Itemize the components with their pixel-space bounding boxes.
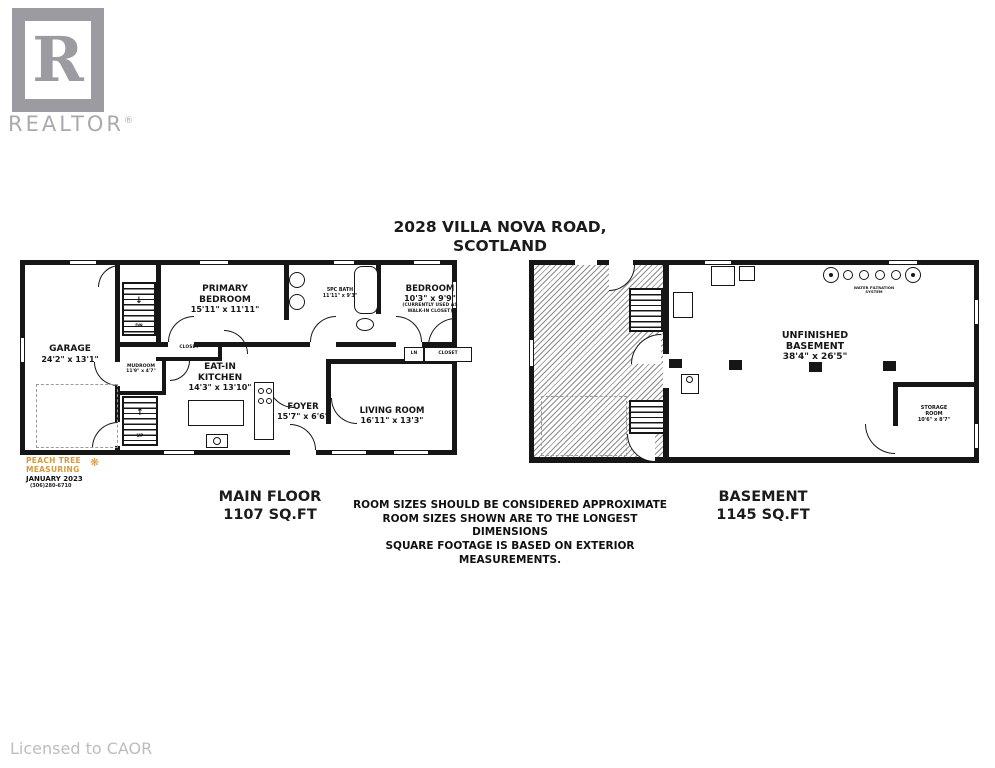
room-label-kitchen: EAT-IN KITCHEN 14'3" x 13'10" <box>170 362 270 393</box>
company-name: MEASURING <box>26 465 83 474</box>
room-name: BEDROOM <box>386 284 474 294</box>
dn-text: DN <box>135 324 143 329</box>
appliance <box>739 266 755 281</box>
mechanical-circle-icon <box>859 270 869 280</box>
measure-date: JANUARY 2023 <box>26 475 83 483</box>
support-pillar <box>809 362 822 372</box>
window <box>332 450 366 455</box>
realtor-wordmark-text: REALTOR <box>8 112 124 136</box>
sink-basin-icon <box>213 437 221 445</box>
realtor-logo: R <box>12 8 104 112</box>
property-address-title: 2028 VILLA NOVA ROAD, SCOTLAND <box>310 218 690 257</box>
registered-trademark-icon: ® <box>124 116 136 126</box>
room-label-mudroom: MUDROOM 11'9" x 4'7" <box>118 364 164 375</box>
room-label-garage: GARAGE 24'2" x 13'1" <box>20 344 120 364</box>
door-arc <box>224 330 248 354</box>
door-arc <box>428 318 456 346</box>
disclaimer: ROOM SIZES SHOULD BE CONSIDERED APPROXIM… <box>345 499 675 567</box>
room-dims: 15'7" x 6'6" <box>261 412 345 421</box>
room-name: UNFINISHED <box>765 330 865 341</box>
door-arc <box>98 265 120 287</box>
floor-sqft: 1145 SQ.FT <box>673 506 853 524</box>
wall <box>663 260 669 354</box>
kitchen-island <box>188 400 244 426</box>
stair-up-label: UP <box>125 434 155 439</box>
room-name: EAT-IN <box>170 362 270 373</box>
room-dims: 11'11" x 9'3" <box>300 294 380 300</box>
room-dims: 24'2" x 13'1" <box>20 355 120 364</box>
room-dims: 38'4" x 26'5" <box>765 352 865 363</box>
room-name: BASEMENT <box>765 341 865 352</box>
closet2-label-text: CLOSET <box>438 351 457 356</box>
room-dims: 16'11" x 13'3" <box>340 416 444 425</box>
door-arc <box>94 362 118 386</box>
linen-label-text: LN <box>411 351 418 356</box>
up-text: UP <box>137 434 144 439</box>
door-opening <box>290 450 316 455</box>
room-dims: 10'6" x 8'7" <box>902 418 966 424</box>
garage-dashed-area <box>36 384 118 448</box>
room-name: PRIMARY <box>175 284 275 295</box>
mechanical-dot-icon <box>829 273 833 277</box>
disclaimer-line: ROOM SIZES SHOULD BE CONSIDERED APPROXIM… <box>345 499 675 513</box>
wall <box>20 450 457 455</box>
door-arc <box>865 424 895 454</box>
window <box>974 300 979 324</box>
room-dims: 15'11" x 11'11" <box>175 305 275 314</box>
measuring-company-credit: PEACH TREE MEASURING JANUARY 2023 (306)2… <box>26 456 83 489</box>
company-name: PEACH TREE <box>26 456 83 465</box>
room-dims: 14'3" x 13'10" <box>170 383 270 392</box>
window <box>974 424 979 448</box>
basement-plan: WATER FILTRATION SYSTEM UNFINISHED BASEM… <box>527 258 989 470</box>
mechanical-dot-icon <box>911 273 915 277</box>
linen-label: LN <box>404 351 424 356</box>
stair-direction-arrow: ↑ <box>136 408 144 418</box>
support-pillar <box>883 361 896 371</box>
room-label-unfinished-basement: UNFINISHED BASEMENT 38'4" x 26'5" <box>765 330 865 363</box>
room-label-bath: 5PC BATH 11'11" x 9'3" <box>300 288 380 299</box>
valve-icon <box>686 376 693 383</box>
wall <box>162 357 166 395</box>
disclaimer-line: SQUARE FOOTAGE IS BASED ON EXTERIOR <box>345 540 675 554</box>
company-phone: (306)280-6710 <box>30 483 83 489</box>
room-name: LIVING ROOM <box>340 406 444 416</box>
address-line-2: SCOTLAND <box>310 237 690 256</box>
wall <box>529 457 979 463</box>
door-arc <box>396 316 422 342</box>
wall <box>893 382 898 426</box>
floor-name: BASEMENT <box>673 488 853 506</box>
closet-label: CLOSET <box>158 345 220 350</box>
room-name: BEDROOM <box>175 295 275 306</box>
appliance <box>673 292 693 318</box>
toilet <box>356 318 374 331</box>
window <box>164 450 194 455</box>
room-label-primary-bedroom: PRIMARY BEDROOM 15'11" x 11'11" <box>175 284 275 315</box>
door-arc <box>310 316 336 342</box>
wall <box>284 260 289 320</box>
window <box>414 260 440 265</box>
stairs <box>629 288 663 332</box>
window <box>70 260 96 265</box>
room-label-foyer: FOYER 15'7" x 6'6" <box>261 402 345 421</box>
equipment-label: WATER FILTRATION SYSTEM <box>839 286 909 295</box>
mechanical-circle-icon <box>891 270 901 280</box>
door-arc <box>168 316 194 342</box>
wall <box>120 391 166 395</box>
room-name: KITCHEN <box>170 373 270 384</box>
window <box>705 260 731 265</box>
room-label-storage-room: STORAGE ROOM 10'6" x 8'7" <box>902 406 966 424</box>
mechanical-circle-icon <box>875 270 885 280</box>
main-floor-plan: GARAGE 24'2" x 13'1" PRIMARY BEDROOM 15'… <box>18 258 480 470</box>
basement-footer: BASEMENT 1145 SQ.FT <box>673 488 853 524</box>
floor-name: MAIN FLOOR <box>180 488 360 506</box>
dashed-area <box>541 396 627 456</box>
window <box>334 260 354 265</box>
disclaimer-line: ROOM SIZES SHOWN ARE TO THE LONGEST <box>345 513 675 527</box>
address-line-1: 2028 VILLA NOVA ROAD, <box>310 218 690 237</box>
room-label-bedroom: BEDROOM 10'3" x 9'9" (CURRENTLY USED AS … <box>386 284 474 314</box>
sink <box>289 272 305 288</box>
stair-direction-arrow: ↓ <box>135 296 143 306</box>
stair-down-label: DN <box>124 324 154 329</box>
window <box>889 260 917 265</box>
room-label-living-room: LIVING ROOM 16'11" x 13'3" <box>340 406 444 425</box>
support-pillar <box>729 360 742 370</box>
floor-plan-page: R REALTOR® 2028 VILLA NOVA ROAD, SCOTLAN… <box>0 0 995 768</box>
room-note: WALK-IN CLOSET) <box>386 309 474 314</box>
window <box>394 450 428 455</box>
wall <box>336 342 396 347</box>
wall <box>156 260 161 344</box>
tree-icon: ❋ <box>90 456 99 469</box>
window <box>200 260 228 265</box>
disclaimer-line: MEASUREMENTS. <box>345 554 675 568</box>
room-name: FOYER <box>261 402 345 412</box>
window <box>529 340 534 366</box>
closet2-label: CLOSET <box>424 351 472 356</box>
realtor-r-icon: R <box>32 29 84 91</box>
main-floor-footer: MAIN FLOOR 1107 SQ.FT <box>180 488 360 524</box>
door-arc <box>290 424 316 450</box>
wall <box>893 382 979 387</box>
stairs <box>629 400 665 434</box>
furnace <box>711 266 735 286</box>
mechanical-circle-icon <box>843 270 853 280</box>
support-pillar <box>669 359 682 368</box>
room-dims: 11'9" x 4'7" <box>118 369 164 374</box>
floor-sqft: 1107 SQ.FT <box>180 506 360 524</box>
door-opening <box>575 260 597 265</box>
realtor-wordmark: REALTOR® <box>8 112 136 136</box>
disclaimer-line: DIMENSIONS <box>345 526 675 540</box>
realtor-logo-inner: R <box>25 21 91 99</box>
equipment-text: SYSTEM <box>839 290 909 294</box>
license-text: Licensed to CAOR <box>10 739 152 758</box>
closet-label-text: CLOSET <box>179 345 198 350</box>
room-name: GARAGE <box>20 344 120 355</box>
